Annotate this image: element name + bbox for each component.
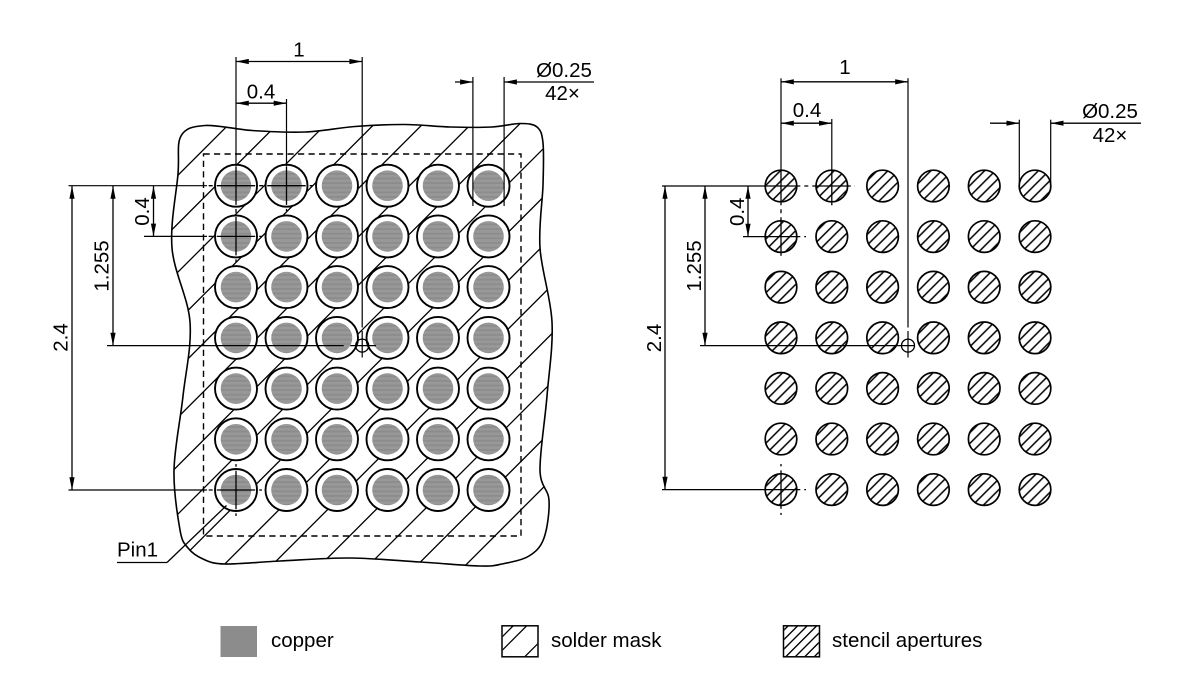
svg-text:solder mask: solder mask (551, 629, 662, 652)
svg-text:Ø0.25: Ø0.25 (1082, 100, 1138, 123)
svg-text:1: 1 (839, 56, 850, 79)
svg-text:0.4: 0.4 (726, 198, 749, 227)
svg-text:0.4: 0.4 (131, 197, 154, 226)
svg-text:42×: 42× (1093, 124, 1128, 147)
svg-text:42×: 42× (545, 82, 580, 105)
svg-text:2.4: 2.4 (50, 323, 73, 352)
svg-text:0.4: 0.4 (247, 80, 276, 103)
svg-text:1: 1 (293, 39, 304, 62)
svg-text:Pin1: Pin1 (117, 539, 158, 562)
svg-text:1.255: 1.255 (683, 240, 706, 291)
svg-text:0.4: 0.4 (793, 99, 822, 122)
svg-text:copper: copper (271, 629, 334, 652)
svg-text:1.255: 1.255 (91, 240, 114, 291)
svg-text:stencil apertures: stencil apertures (832, 629, 982, 652)
svg-text:Ø0.25: Ø0.25 (536, 59, 592, 82)
svg-text:2.4: 2.4 (643, 324, 666, 353)
